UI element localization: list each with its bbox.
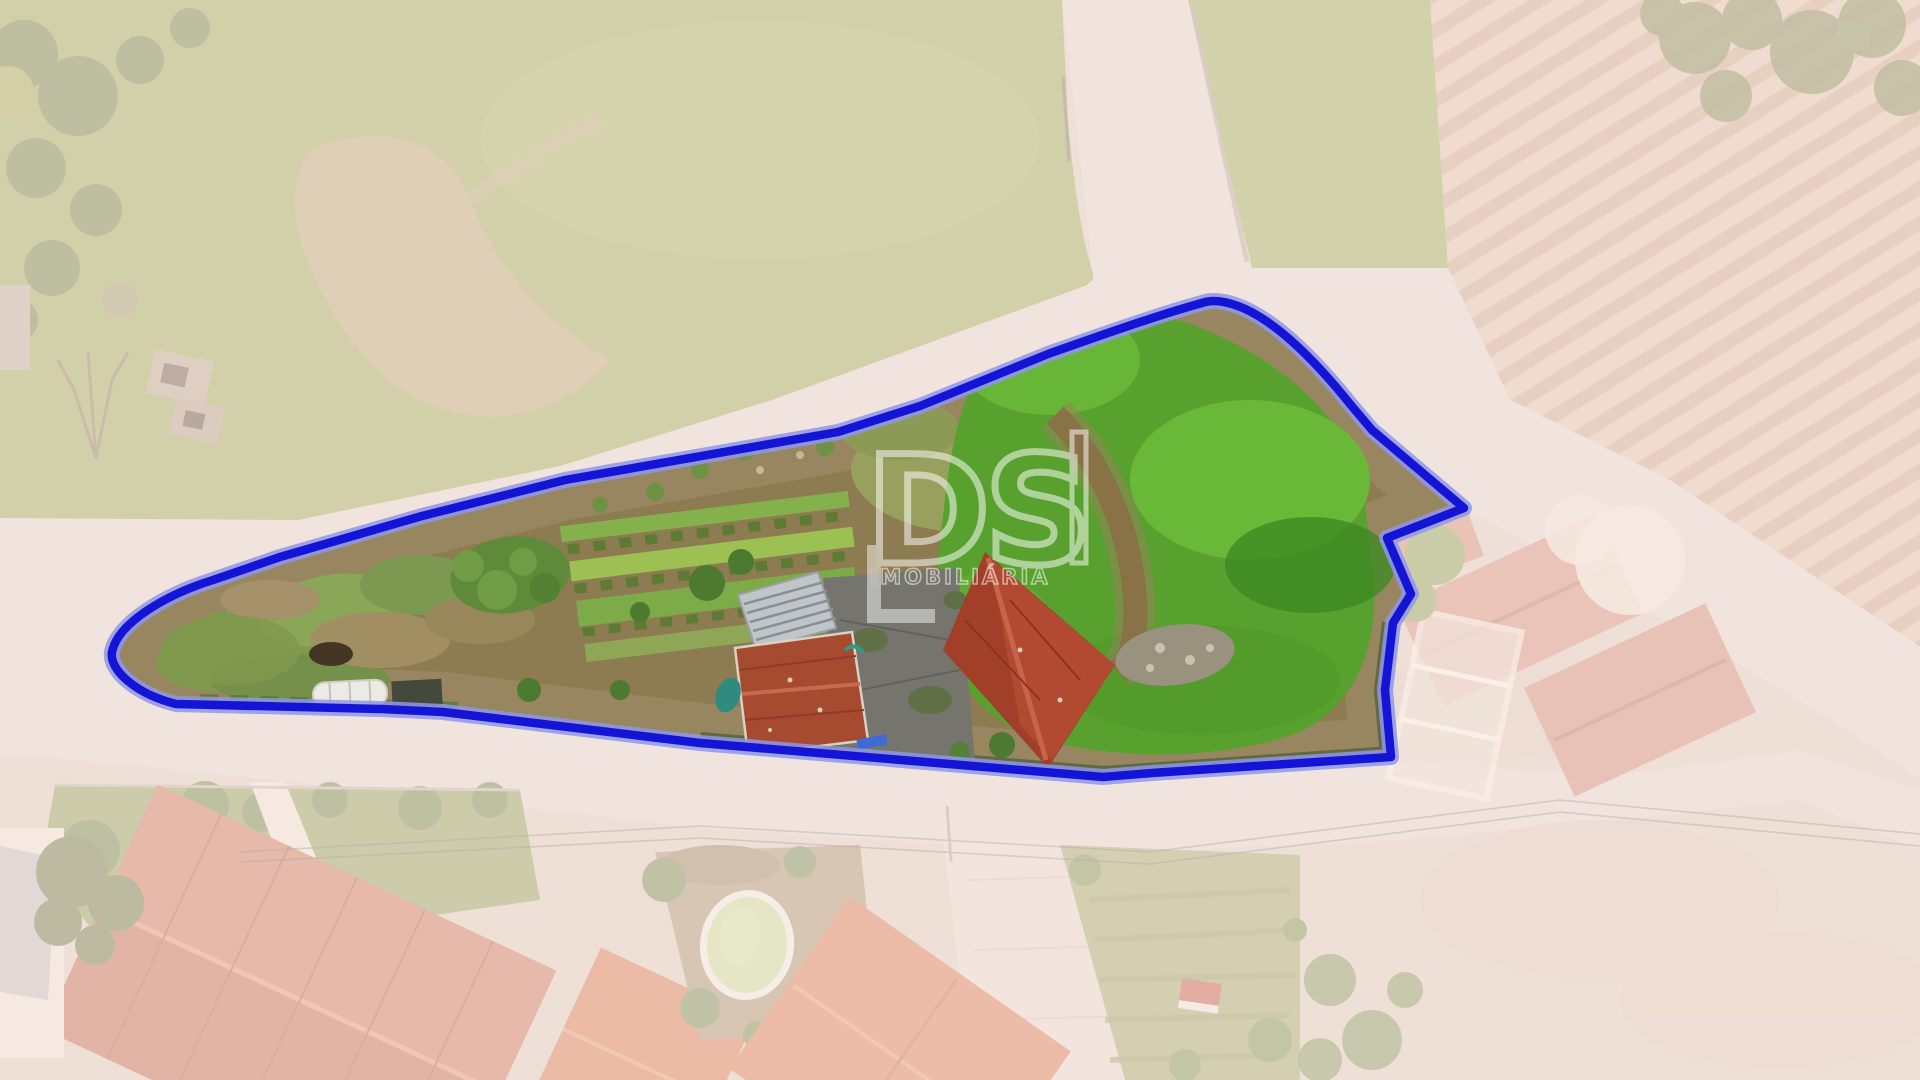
red-roof-building-west bbox=[735, 632, 868, 755]
watermark: DS IMOBILIÁRIA bbox=[866, 425, 1087, 616]
aerial-photo: DS IMOBILIÁRIA bbox=[0, 0, 1920, 1080]
scene-svg: DS IMOBILIÁRIA bbox=[0, 0, 1920, 1080]
compost-pile bbox=[309, 642, 353, 666]
watermark-subtitle: IMOBILIÁRIA bbox=[869, 564, 1050, 589]
